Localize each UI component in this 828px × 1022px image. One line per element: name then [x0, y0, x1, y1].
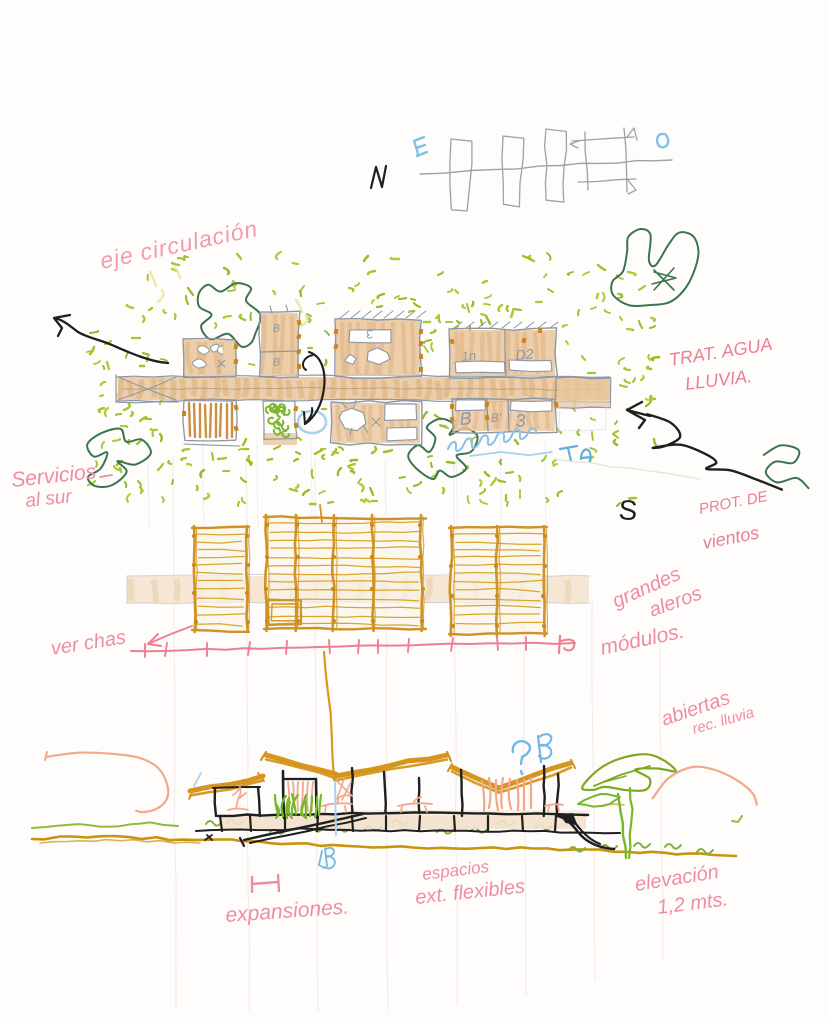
svg-text:B: B — [272, 323, 280, 335]
svg-text:B: B — [272, 357, 280, 369]
svg-text:3: 3 — [515, 410, 526, 431]
svg-text:S: S — [618, 494, 639, 526]
svg-text:B': B' — [490, 410, 502, 425]
svg-text:B: B — [459, 408, 472, 429]
